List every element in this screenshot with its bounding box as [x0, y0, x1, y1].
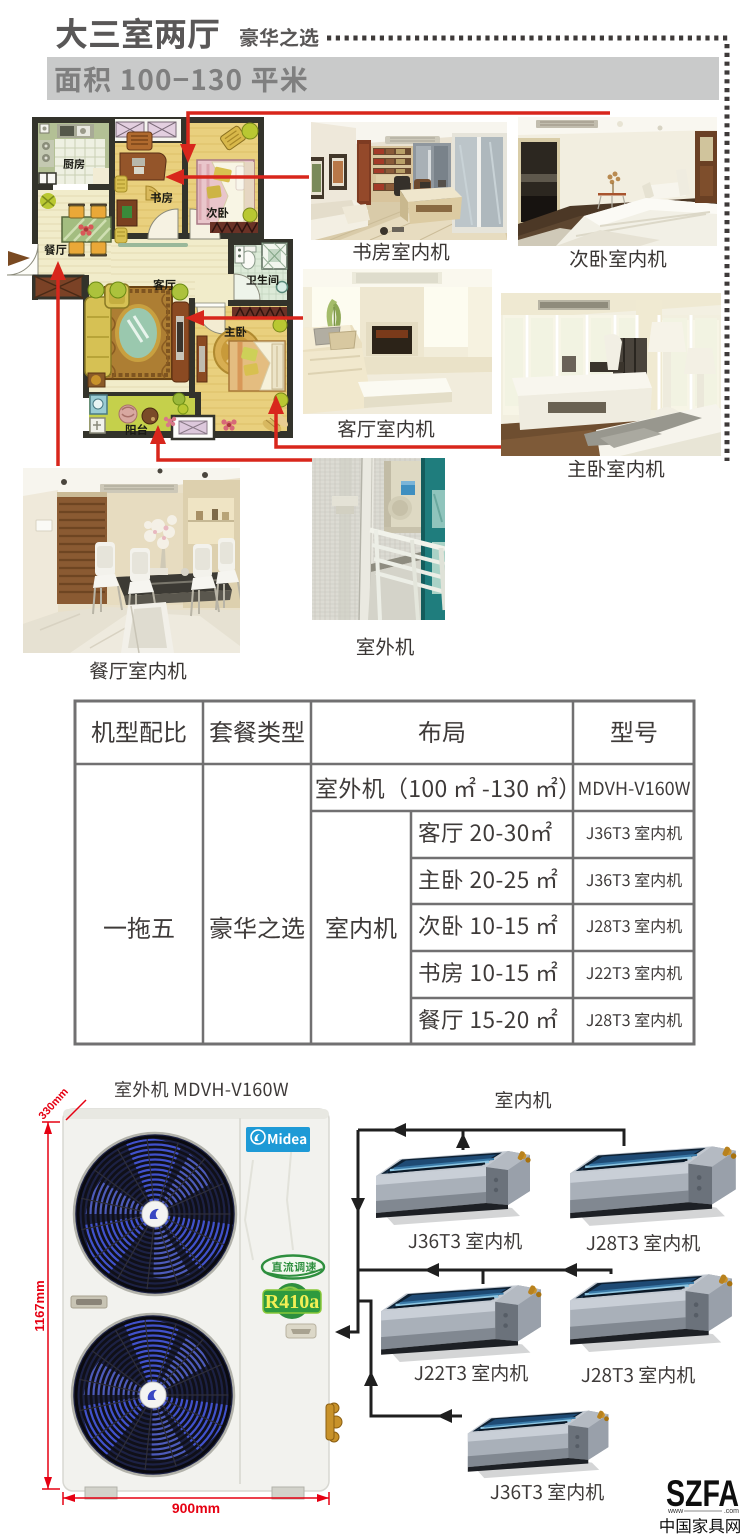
svg-text:900mm: 900mm: [172, 1500, 220, 1516]
svg-text:www: www: [667, 1508, 684, 1515]
svg-text:.com: .com: [724, 1508, 739, 1515]
svg-text:1167mm: 1167mm: [32, 1280, 47, 1331]
svg-text:R410a: R410a: [265, 1291, 319, 1313]
